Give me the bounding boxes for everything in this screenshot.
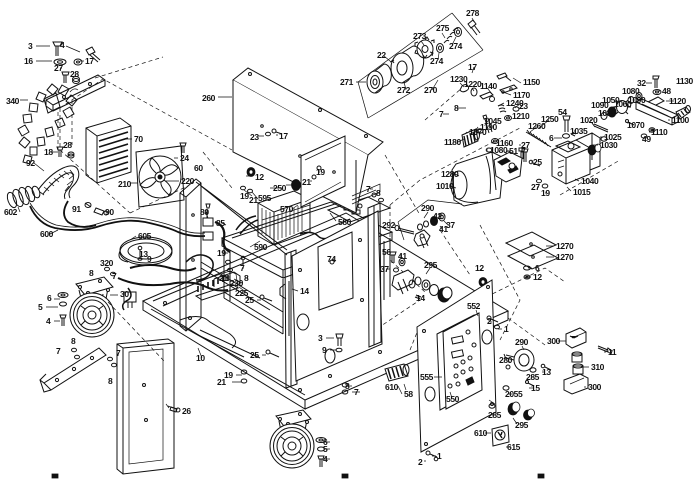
svg-text:595: 595 xyxy=(258,193,272,203)
svg-text:580: 580 xyxy=(338,217,352,227)
svg-text:28: 28 xyxy=(70,69,79,79)
svg-text:210: 210 xyxy=(118,179,132,189)
svg-text:8: 8 xyxy=(71,336,76,346)
svg-text:555: 555 xyxy=(420,372,434,382)
svg-text:42: 42 xyxy=(433,211,442,221)
svg-text:41: 41 xyxy=(439,224,448,234)
svg-text:2: 2 xyxy=(418,457,423,467)
svg-text:12: 12 xyxy=(533,272,542,282)
svg-text:1110: 1110 xyxy=(651,127,668,137)
svg-text:19: 19 xyxy=(240,191,249,201)
svg-text:48: 48 xyxy=(662,86,671,96)
svg-text:1035: 1035 xyxy=(570,126,588,136)
svg-text:74: 74 xyxy=(327,254,336,264)
svg-text:23: 23 xyxy=(519,101,528,111)
svg-text:7: 7 xyxy=(112,271,117,281)
svg-text:1210: 1210 xyxy=(512,111,530,121)
svg-text:605: 605 xyxy=(138,231,152,241)
svg-text:270: 270 xyxy=(424,85,438,95)
svg-text:273: 273 xyxy=(413,31,427,41)
svg-text:2055: 2055 xyxy=(505,389,523,399)
svg-text:1010: 1010 xyxy=(436,181,454,191)
svg-text:32: 32 xyxy=(637,78,646,88)
svg-text:26: 26 xyxy=(182,406,191,416)
svg-text:274: 274 xyxy=(449,41,463,51)
svg-text:1270: 1270 xyxy=(556,241,574,251)
svg-text:3: 3 xyxy=(28,41,33,51)
svg-text:610: 610 xyxy=(385,382,399,392)
svg-text:17: 17 xyxy=(85,56,94,66)
svg-text:7: 7 xyxy=(56,346,61,356)
svg-text:2: 2 xyxy=(487,316,492,326)
svg-text:25: 25 xyxy=(245,295,254,305)
svg-text:7: 7 xyxy=(116,348,121,358)
svg-text:9: 9 xyxy=(147,254,152,264)
svg-text:8: 8 xyxy=(89,268,94,278)
svg-text:25: 25 xyxy=(533,157,542,167)
svg-text:91: 91 xyxy=(72,204,81,214)
svg-text:300: 300 xyxy=(588,382,602,392)
svg-text:292: 292 xyxy=(382,220,396,230)
svg-text:4: 4 xyxy=(46,316,51,326)
svg-text:17: 17 xyxy=(279,131,288,141)
svg-text:21: 21 xyxy=(219,273,228,283)
svg-text:60: 60 xyxy=(194,163,203,173)
svg-text:272: 272 xyxy=(397,85,411,95)
svg-text:14: 14 xyxy=(300,286,309,296)
svg-text:24: 24 xyxy=(180,153,189,163)
svg-text:80: 80 xyxy=(200,207,209,217)
svg-text:260: 260 xyxy=(202,93,216,103)
svg-text:274: 274 xyxy=(430,56,444,66)
svg-text:12: 12 xyxy=(475,263,484,273)
svg-text:1040: 1040 xyxy=(581,176,599,186)
svg-text:1070: 1070 xyxy=(469,127,487,137)
svg-text:92: 92 xyxy=(26,158,35,168)
svg-text:1280: 1280 xyxy=(441,169,459,179)
svg-text:4: 4 xyxy=(60,40,65,50)
svg-text:25: 25 xyxy=(250,350,259,360)
svg-text:1070: 1070 xyxy=(627,120,645,130)
svg-text:285: 285 xyxy=(488,410,502,420)
svg-text:570: 570 xyxy=(280,204,294,214)
svg-text:11: 11 xyxy=(608,347,617,357)
svg-text:552: 552 xyxy=(467,301,481,311)
svg-text:41: 41 xyxy=(398,251,407,261)
svg-text:295: 295 xyxy=(515,420,529,430)
svg-text:8: 8 xyxy=(108,376,113,386)
svg-text:6: 6 xyxy=(47,293,52,303)
svg-text:3: 3 xyxy=(318,333,323,343)
svg-text:49: 49 xyxy=(642,134,651,144)
svg-text:27: 27 xyxy=(521,140,530,150)
svg-text:1270: 1270 xyxy=(556,252,574,262)
svg-text:220: 220 xyxy=(181,176,195,186)
svg-text:21: 21 xyxy=(249,195,258,205)
svg-text:21: 21 xyxy=(302,177,311,187)
svg-text:1: 1 xyxy=(504,324,509,334)
svg-text:280: 280 xyxy=(499,355,513,365)
svg-text:1260: 1260 xyxy=(528,121,546,131)
svg-text:12: 12 xyxy=(255,172,264,182)
svg-text:1: 1 xyxy=(437,451,442,461)
svg-text:1080: 1080 xyxy=(598,108,616,118)
svg-text:54: 54 xyxy=(558,107,567,117)
svg-text:22: 22 xyxy=(377,50,386,60)
svg-text:14: 14 xyxy=(416,293,425,303)
svg-text:90: 90 xyxy=(105,207,114,217)
svg-text:295: 295 xyxy=(424,260,438,270)
svg-text:275: 275 xyxy=(436,23,450,33)
svg-text:1180: 1180 xyxy=(444,137,462,147)
svg-text:28: 28 xyxy=(63,140,72,150)
svg-text:320: 320 xyxy=(100,258,114,268)
svg-text:30: 30 xyxy=(120,289,129,299)
svg-text:6: 6 xyxy=(549,133,554,143)
svg-text:1080: 1080 xyxy=(490,145,508,155)
svg-text:51: 51 xyxy=(509,146,518,156)
svg-text:5: 5 xyxy=(38,302,43,312)
svg-text:1150: 1150 xyxy=(523,77,541,87)
svg-text:550: 550 xyxy=(446,394,460,404)
svg-text:602: 602 xyxy=(4,207,18,217)
svg-text:19: 19 xyxy=(316,167,325,177)
svg-text:310: 310 xyxy=(591,362,605,372)
svg-text:70: 70 xyxy=(134,134,143,144)
svg-text:9: 9 xyxy=(322,345,327,355)
svg-text:23: 23 xyxy=(250,132,259,142)
svg-text:18: 18 xyxy=(44,147,53,157)
svg-text:1130: 1130 xyxy=(676,76,694,86)
svg-text:278: 278 xyxy=(466,8,480,18)
svg-text:1030: 1030 xyxy=(600,140,618,150)
svg-text:600: 600 xyxy=(40,229,54,239)
svg-text:85: 85 xyxy=(216,218,225,228)
svg-text:340: 340 xyxy=(6,96,20,106)
svg-text:1100: 1100 xyxy=(672,115,690,125)
svg-text:1015: 1015 xyxy=(573,187,591,197)
svg-text:1020: 1020 xyxy=(580,115,598,125)
svg-text:21: 21 xyxy=(217,377,226,387)
svg-text:271: 271 xyxy=(340,77,354,87)
svg-text:58: 58 xyxy=(404,389,413,399)
svg-text:290: 290 xyxy=(515,337,529,347)
svg-text:16: 16 xyxy=(24,56,33,66)
